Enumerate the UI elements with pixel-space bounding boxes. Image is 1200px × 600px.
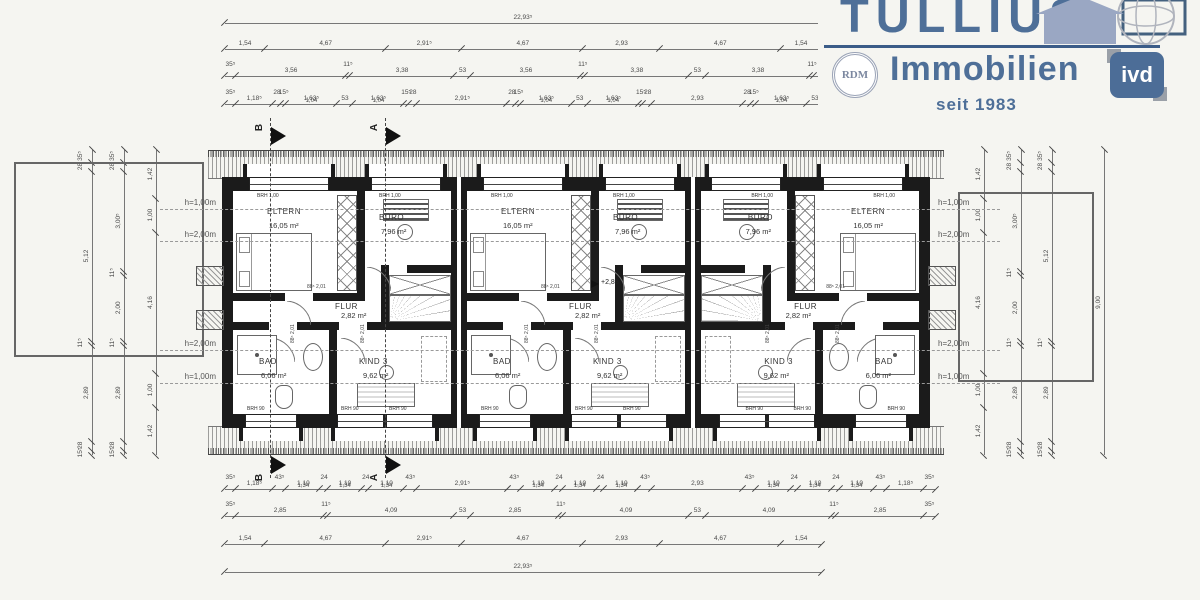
stair-void [623, 275, 685, 295]
window [249, 177, 329, 191]
dimension-row-bottom-axes: 1,544,672,91⁵4,672,934,671,54 [225, 532, 821, 545]
door-size-label: 88⁵ 2,01 [836, 324, 842, 343]
pillow [239, 271, 250, 287]
sill-height-label: BRH 90 [389, 406, 407, 412]
room-area-buero: 7,96 m² [615, 227, 640, 236]
sill-height-label: BRH 90 [575, 406, 593, 412]
shower [471, 335, 511, 375]
room-area-flur: 2,82 m² [341, 311, 366, 320]
roof-height-line [160, 241, 1000, 242]
door-arc [519, 301, 545, 327]
door-size-label: 88⁵ 2,01 [541, 285, 560, 291]
sill-height-label: BRH 90 [623, 406, 641, 412]
roof-height-line [160, 350, 1000, 351]
dormer [565, 428, 673, 441]
room-label-flur: FLUR [794, 302, 817, 311]
room-label-buero: BÜRO [613, 213, 638, 222]
window [483, 177, 563, 191]
sill-height-label: BRH 1,00 [873, 193, 895, 199]
room-label-flur: FLUR [569, 302, 592, 311]
stair-winder [701, 295, 763, 322]
door-arc [841, 301, 867, 327]
sill-height-label: BRH 1,00 [613, 193, 635, 199]
sill-height-label: BRH 90 [481, 406, 499, 412]
sill-height-label: BRH 90 [887, 406, 905, 412]
room-area-flur: 2,82 m² [575, 311, 600, 320]
sill-height-label: BRH 90 [247, 406, 265, 412]
door-opening [785, 322, 813, 330]
room-area-bad: 6,06 m² [261, 371, 286, 380]
party-wall [451, 177, 467, 428]
floor-plan: BRH 1,00 BRH 1,00 BRH 90 BRH 90 BRH 90 E… [222, 150, 930, 455]
shower [875, 335, 915, 375]
door-arc [761, 267, 787, 293]
eave-stub [196, 310, 224, 330]
door-opening [839, 293, 867, 301]
section-label-b: B [254, 124, 265, 131]
house-unit-2: BRH 1,00 BRH 1,00 BRH 90 BRH 90 BRH 90 E… [467, 191, 685, 414]
wall [787, 191, 795, 301]
roof-height-label: h=1,00m [938, 372, 969, 381]
section-line-a [385, 118, 386, 478]
dormer [473, 428, 537, 441]
section-marker-icon [386, 456, 401, 474]
door-size-label: 88⁵ 2,01 [361, 324, 367, 343]
dimension-row-bottom-rooms: 35⁵2,8511⁵4,09532,8511⁵4,09534,0911⁵2,85… [225, 504, 935, 517]
room-label-bad: BAD [875, 357, 893, 366]
dimension-row-bottom-openings: 35⁵1,18⁵43⁵1,101,34241,101,34241,101,344… [225, 477, 935, 490]
room-area-kind: 9,62 m² [597, 371, 622, 380]
door-arc [285, 301, 311, 327]
door-size-label: 88⁵ 2,01 [525, 324, 531, 343]
logo-since: seit 1983 [936, 95, 1017, 115]
dormer [849, 428, 913, 441]
pillow [473, 237, 484, 253]
toilet [275, 385, 293, 409]
wall [815, 330, 823, 414]
room-area-bad: 6,06 m² [495, 371, 520, 380]
room-label-buero: BÜRO [379, 213, 404, 222]
dimension-row-top-total: 22,93⁵ [225, 11, 821, 24]
room-label-kind: KIND 3 [593, 357, 622, 366]
ivd-badge-icon: ivd [1110, 52, 1164, 98]
level-annotation: +2,88 [601, 279, 619, 286]
company-logo: TULLIUS RDM Immobilien ivd seit 1983 [818, 0, 1200, 122]
room-area-kind: 9,62 m² [764, 371, 789, 380]
section-marker-icon [386, 127, 401, 145]
house-unit-3: BRH 1,00 BRH 1,00 BRH 90 BRH 90 BRH 90 E… [701, 191, 919, 414]
room-label-bad: BAD [493, 357, 511, 366]
pillow [239, 237, 250, 253]
room-area-eltern: 16,05 m² [269, 221, 299, 230]
toilet [509, 385, 527, 409]
roof-height-label: h=2,00m [938, 230, 969, 239]
sink [829, 343, 849, 371]
pillow [473, 271, 484, 287]
room-area-bad: 6,06 m² [866, 371, 891, 380]
door-size-label: 88⁵ 2,01 [595, 324, 601, 343]
shower [237, 335, 277, 375]
door-arc [365, 267, 391, 293]
logo-divider [824, 45, 1160, 48]
room-area-eltern: 16,05 m² [503, 221, 533, 230]
closet-dashed [421, 336, 447, 382]
logo-subtitle: Immobilien [890, 50, 1079, 89]
sill-height-label: BRH 90 [793, 406, 811, 412]
party-wall [685, 177, 701, 428]
room-area-flur: 2,82 m² [786, 311, 811, 320]
section-marker-icon [271, 456, 286, 474]
window [371, 177, 441, 191]
section-marker-icon [271, 127, 286, 145]
dormer [239, 428, 303, 441]
window [479, 414, 531, 428]
closet-dashed [705, 336, 731, 382]
stair-void [389, 275, 451, 295]
pillow [843, 237, 854, 253]
sill-height-label: BRH 1,00 [491, 193, 513, 199]
dormer [817, 164, 909, 177]
sill-height-label: BRH 1,00 [257, 193, 279, 199]
door-opening [285, 293, 313, 301]
sill-height-label: BRH 90 [341, 406, 359, 412]
eave-stub [196, 266, 224, 286]
roof-height-label: h=1,00m [160, 198, 216, 207]
desk [591, 383, 649, 407]
rdm-seal-icon: RDM [832, 52, 878, 98]
roof-height-label: h=1,00m [938, 198, 969, 207]
neighbor-outline-right [958, 192, 1094, 382]
roof-height-label: h=2,00m [160, 230, 216, 239]
roof-height-label: h=2,00m [938, 339, 969, 348]
window [605, 177, 675, 191]
section-line-b [270, 118, 271, 478]
dimension-row-bottom-total: 22,93⁵ [225, 560, 821, 573]
sill-height-label: BRH 1,00 [751, 193, 773, 199]
dormer [365, 164, 447, 177]
wall [329, 330, 337, 414]
roof-height-label: h=1,00m [160, 372, 216, 381]
dormer [243, 164, 335, 177]
door-size-label: 88⁵ 2,01 [826, 285, 845, 291]
sill-height-label: BRH 1,00 [379, 193, 401, 199]
wall [407, 265, 451, 273]
section-label-a: A [369, 474, 380, 481]
window [855, 414, 907, 428]
house-unit-1: BRH 1,00 BRH 1,00 BRH 90 BRH 90 BRH 90 E… [233, 191, 451, 414]
section-label-a: A [369, 124, 380, 131]
sink [303, 343, 323, 371]
door-size-label: 88⁵ 2,01 [291, 324, 297, 343]
closet-dashed [655, 336, 681, 382]
roof-height-line [160, 383, 1000, 384]
roof-height-label: h=2,00m [160, 339, 216, 348]
wall [641, 265, 685, 273]
stair-winder [389, 295, 451, 322]
wall [563, 330, 571, 414]
door-opening [519, 293, 547, 301]
window [719, 414, 815, 428]
window [823, 177, 903, 191]
wall [357, 191, 365, 301]
window [571, 414, 667, 428]
room-label-buero: BÜRO [748, 213, 773, 222]
desk [737, 383, 795, 407]
room-label-kind: KIND 3 [359, 357, 388, 366]
wall [701, 265, 745, 273]
window [245, 414, 297, 428]
neighbor-outline-left [14, 162, 204, 357]
dormer [599, 164, 681, 177]
room-label-bad: BAD [259, 357, 277, 366]
room-area-eltern: 16,05 m² [853, 221, 883, 230]
dormer [705, 164, 787, 177]
window [711, 177, 781, 191]
dimension-row-top-axes: 1,544,672,91⁵4,672,934,671,54 [225, 37, 821, 50]
dormer [477, 164, 569, 177]
roof-height-line [160, 209, 1000, 210]
door-size-label: 88⁵ 2,01 [307, 285, 326, 291]
toilet [859, 385, 877, 409]
dormer [713, 428, 821, 441]
room-label-flur: FLUR [335, 302, 358, 311]
sink [537, 343, 557, 371]
sill-height-label: BRH 90 [745, 406, 763, 412]
door-size-label: 88⁵ 2,01 [766, 324, 772, 343]
section-label-b: B [254, 474, 265, 481]
room-area-buero: 7,96 m² [746, 227, 771, 236]
eave-stub [928, 266, 956, 286]
house-globe-icon [1028, 0, 1200, 46]
desk [357, 383, 415, 407]
stair-void [701, 275, 763, 295]
room-label-kind: KIND 3 [764, 357, 793, 366]
eave-stub [928, 310, 956, 330]
stair-winder [623, 295, 685, 322]
